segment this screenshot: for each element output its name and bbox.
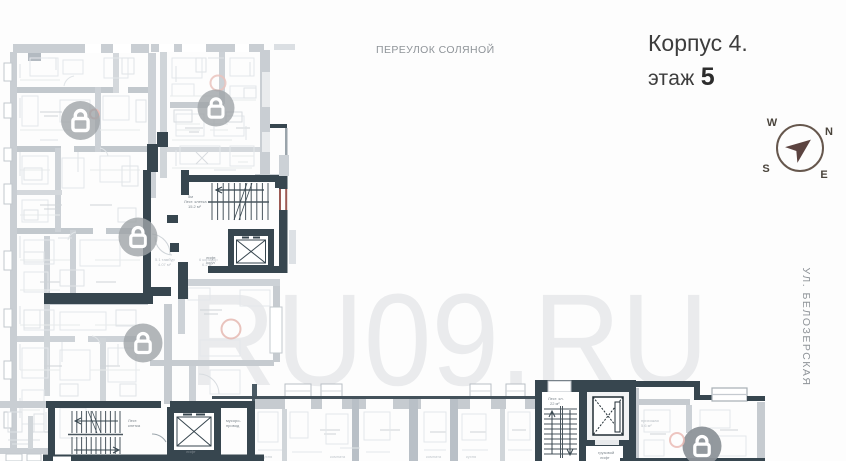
svg-text:W: W <box>767 117 778 129</box>
svg-text:клетка: клетка <box>128 423 141 428</box>
svg-text:лифт: лифт <box>186 449 196 454</box>
svg-text:лифт: лифт <box>600 455 610 460</box>
svg-text:этаж 5: этаж 5 <box>648 63 715 91</box>
svg-text:УЛ. БЕЛОЗЕРСКАЯ: УЛ. БЕЛОЗЕРСКАЯ <box>800 267 812 386</box>
svg-text:ПЕРЕУЛОК СОЛЯНОЙ: ПЕРЕУЛОК СОЛЯНОЙ <box>376 43 495 56</box>
svg-text:S: S <box>762 163 769 175</box>
svg-text:провод: провод <box>226 423 240 428</box>
svg-text:E: E <box>820 169 827 181</box>
svg-text:холл: холл <box>206 260 215 265</box>
svg-text:кухня: кухня <box>466 454 476 459</box>
svg-text:4.07 м²: 4.07 м² <box>158 262 172 267</box>
svg-text:15.2 м²: 15.2 м² <box>188 204 202 209</box>
svg-text:комната: комната <box>426 454 442 459</box>
svg-text:5.6 м²: 5.6 м² <box>641 423 652 428</box>
svg-text:комната: комната <box>330 454 346 459</box>
svg-text:N: N <box>825 126 833 138</box>
svg-text:22 м²: 22 м² <box>550 401 560 406</box>
svg-text:Корпус 4.: Корпус 4. <box>648 30 748 56</box>
